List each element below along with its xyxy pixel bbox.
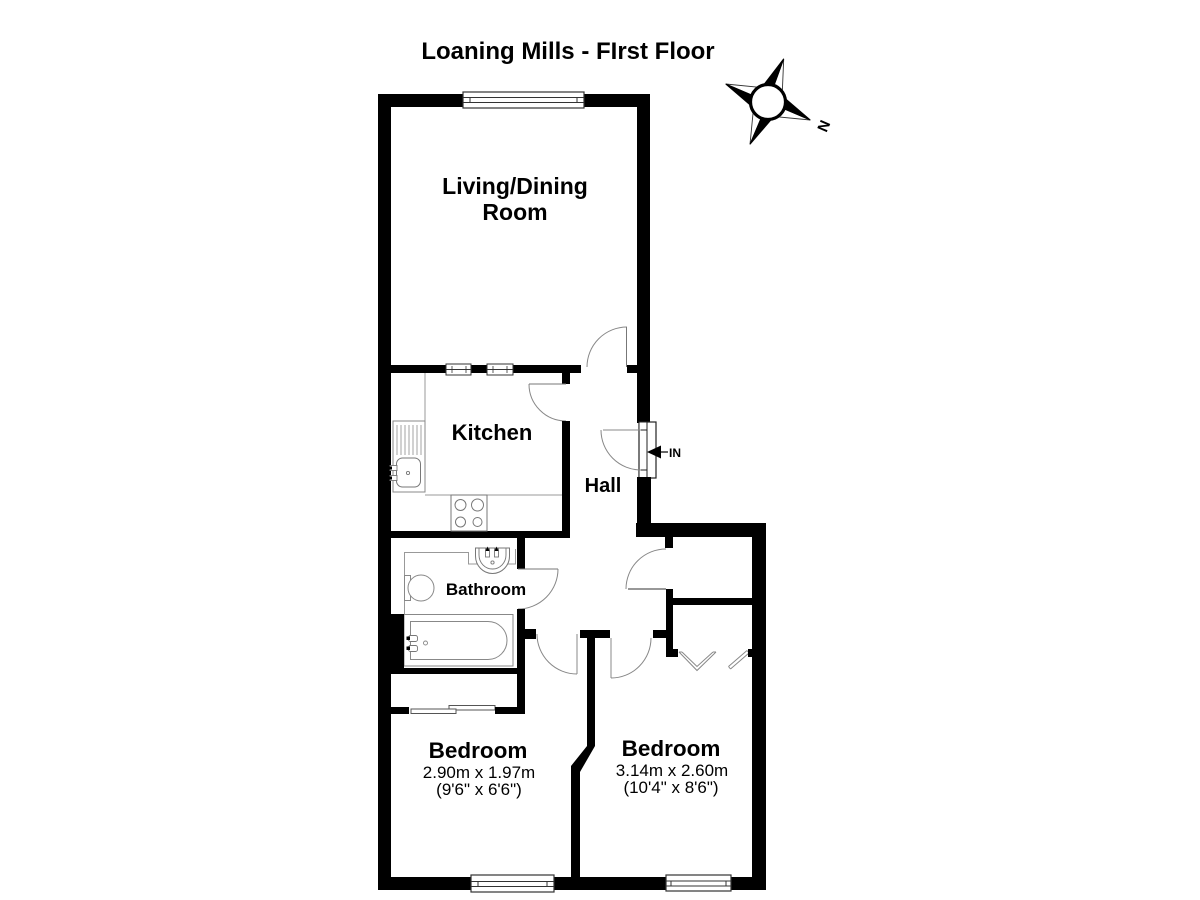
svg-text:Bathroom: Bathroom [446, 580, 526, 599]
svg-text:Room: Room [482, 199, 547, 225]
svg-text:Bedroom: Bedroom [622, 736, 721, 761]
svg-text:Hall: Hall [585, 475, 622, 497]
svg-text:Loaning Mills - FIrst Floor: Loaning Mills - FIrst Floor [421, 38, 714, 65]
svg-text:Kitchen: Kitchen [452, 420, 533, 445]
svg-text:Living/Dining: Living/Dining [442, 173, 588, 199]
svg-text:Bedroom: Bedroom [429, 738, 528, 763]
svg-text:(9'6" x 6'6"): (9'6" x 6'6") [436, 780, 522, 799]
svg-text:IN: IN [669, 446, 681, 460]
svg-text:(10'4" x 8'6"): (10'4" x 8'6") [623, 778, 718, 797]
svg-text:N: N [813, 117, 833, 134]
